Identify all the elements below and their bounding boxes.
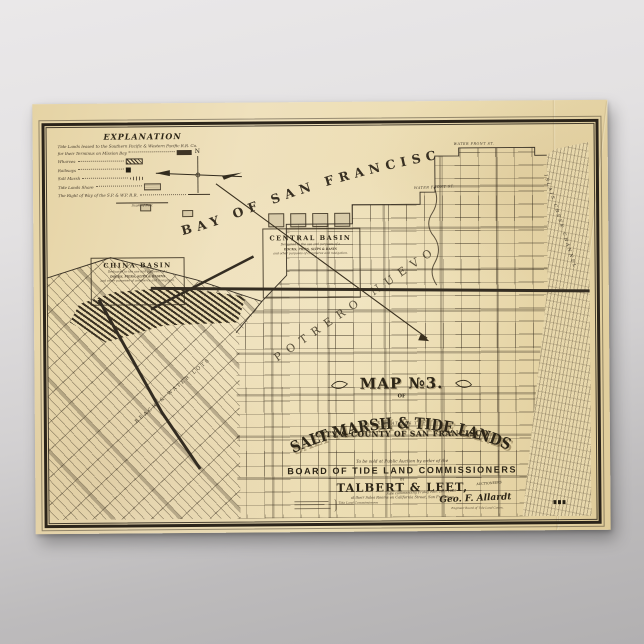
marsh-swatch-icon [130, 176, 145, 180]
right-of-way-arrowhead [418, 333, 429, 341]
water-front-st-label: WATER FRONT ST. [454, 142, 495, 146]
map-number-title: MAP №3. [321, 374, 481, 393]
china-basin-label: CHINA BASIN Dedicated to the use and pur… [93, 261, 183, 283]
central-basin-label: CENTRAL BASIN Dedicated to the use and p… [264, 234, 356, 256]
commissioners-tag: Tide Land Commissioners [338, 500, 398, 504]
map-area: N BAY OF SAN FRANCISCO SALT MARSH & TIDE… [46, 124, 592, 520]
shade-swatch-icon [144, 183, 161, 190]
script-name-line [294, 504, 324, 505]
creek-line [428, 187, 438, 285]
bar-scale-mark [553, 500, 565, 504]
poster-paper: N BAY OF SAN FRANCISCO SALT MARSH & TIDE… [32, 100, 610, 535]
explanation-legend: EXPLANATION Tide Lands leased to the Sou… [58, 131, 229, 208]
script-name-line [294, 501, 328, 502]
title-city-county: CITY & COUNTY OF SAN FRANCISCO [302, 429, 502, 440]
solid-swatch-icon [177, 150, 192, 155]
script-name-line [294, 508, 330, 509]
scale-note: Scale of Feet [116, 202, 168, 207]
title-of: OF [322, 393, 482, 400]
photo-background: N BAY OF SAN FRANCISCO SALT MARSH & TIDE… [0, 0, 644, 644]
brace-mark [332, 499, 336, 512]
square-swatch-icon [126, 167, 131, 172]
hatch-swatch-icon [125, 158, 142, 165]
commissioner-names-block: Tide Land Commissioners [294, 498, 354, 512]
legend-title: EXPLANATION [58, 131, 228, 142]
legend-row: The Right of Way of the S.P. & W.P. R.R. [58, 190, 228, 200]
line-swatch-icon [188, 194, 210, 195]
title-situate: SITUATE IN THE [342, 420, 462, 426]
title-board-line: BOARD OF TIDE LAND COMMISSIONERS [282, 464, 522, 476]
signature-subtitle: Engineer Board of Tide Land Comrs. [432, 505, 522, 510]
